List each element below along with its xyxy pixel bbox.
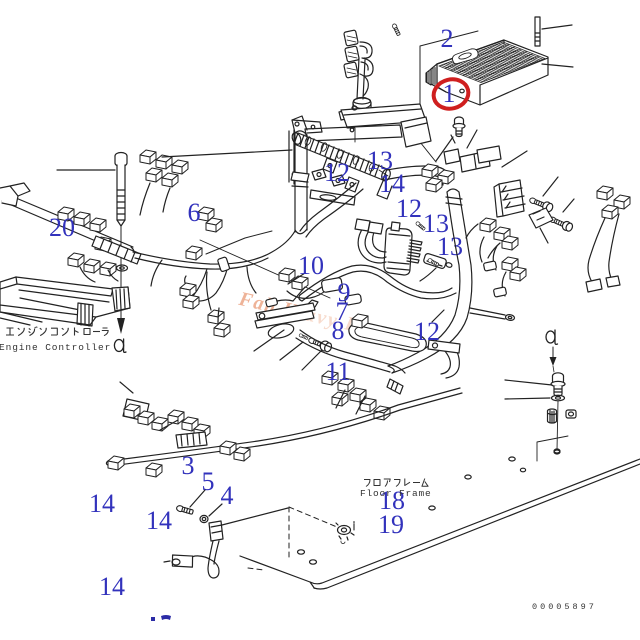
svg-text:14: 14 (99, 572, 125, 601)
svg-text:Floor Frame: Floor Frame (360, 488, 432, 499)
svg-text:4: 4 (221, 481, 234, 510)
svg-text:12: 12 (414, 317, 440, 346)
svg-text:12: 12 (396, 194, 422, 223)
svg-text:13: 13 (437, 232, 463, 261)
svg-text:3: 3 (182, 451, 195, 480)
svg-text:2: 2 (441, 24, 454, 53)
svg-text:12: 12 (324, 158, 350, 187)
svg-text:00005897: 00005897 (532, 602, 597, 612)
svg-text:1: 1 (443, 79, 456, 108)
svg-text:10: 10 (298, 251, 324, 280)
svg-text:Engine Controller: Engine Controller (0, 342, 111, 353)
svg-text:14: 14 (89, 489, 115, 518)
svg-text:19: 19 (378, 510, 404, 539)
svg-text:6: 6 (188, 198, 201, 227)
svg-text:11: 11 (325, 357, 350, 386)
svg-text:8: 8 (332, 316, 345, 345)
svg-text:20: 20 (49, 213, 75, 242)
svg-text:14: 14 (146, 506, 172, 535)
